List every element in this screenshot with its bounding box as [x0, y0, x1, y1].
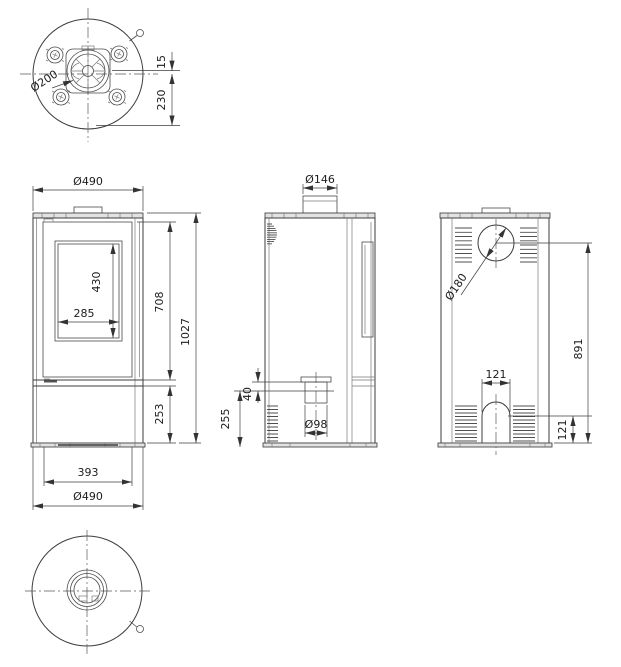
knob-detail — [137, 30, 144, 37]
top-view: Ø200 15 230 — [20, 8, 180, 142]
side-top-vents — [267, 224, 277, 244]
back-top-vents-left — [455, 228, 472, 262]
dim-back-arch-height: 121 — [556, 420, 569, 441]
dim-front-glass-height: 430 — [90, 272, 103, 293]
front-collar — [74, 207, 102, 213]
dim-front-base-height: 253 — [153, 404, 166, 425]
back-view: Ø180 891 121 121 — [438, 208, 592, 455]
dim-back-arch-width: 121 — [486, 368, 507, 381]
front-top-plate — [33, 213, 143, 218]
front-body-seams — [37, 218, 140, 443]
knob-leader — [130, 36, 138, 42]
dim-side-inlet-diameter: Ø98 — [305, 418, 328, 431]
front-body — [33, 218, 143, 443]
dim-top-flue-to-back: 230 — [155, 90, 168, 111]
back-collar — [482, 208, 510, 213]
dim-side-inlet-center-height: 255 — [219, 409, 232, 430]
side-collar — [303, 196, 337, 213]
bottom-knob-detail — [137, 626, 144, 633]
side-door-bottom-seams — [352, 377, 375, 386]
front-view: Ø490 430 285 708 253 1027 — [31, 175, 201, 510]
dim-back-rear-flue-diameter: Ø180 — [442, 271, 469, 303]
back-top-plate — [440, 213, 550, 218]
dim-front-total-height: 1027 — [179, 318, 192, 346]
back-top-vents-right — [520, 228, 537, 262]
dim-front-body-width: 393 — [78, 466, 99, 479]
front-glass-outer — [55, 241, 122, 341]
front-hinge-mark — [44, 219, 53, 222]
bottom-view — [25, 530, 152, 654]
dim-top-flue-offset: 15 — [155, 55, 168, 69]
side-body-seams — [269, 218, 371, 443]
dim-side-collar-diameter: Ø146 — [305, 173, 335, 186]
dim-front-width-bottom: Ø490 — [73, 490, 103, 503]
front-glass-inner — [58, 244, 119, 338]
dim-front-width-top: Ø490 — [73, 175, 103, 188]
dim-front-glass-width: 285 — [74, 307, 95, 320]
back-bottom-vents-left — [455, 406, 477, 441]
side-view: Ø146 40 255 Ø98 — [219, 173, 377, 447]
dim-side-inlet-offset: 40 — [241, 387, 254, 401]
back-bottom-vents-right — [513, 406, 535, 441]
stove-technical-drawing: Ø200 15 230 Ø490 430 285 708 — [0, 0, 621, 667]
back-base-plate — [438, 443, 552, 447]
side-top-plate — [265, 213, 375, 218]
side-base-plate — [263, 443, 377, 447]
dim-back-flue-center-height: 891 — [572, 339, 585, 360]
side-body — [265, 218, 375, 443]
drawing-svg: Ø200 15 230 Ø490 430 285 708 — [0, 0, 621, 667]
bottom-view-centerlines — [25, 530, 152, 654]
dim-front-door-height: 708 — [153, 292, 166, 313]
